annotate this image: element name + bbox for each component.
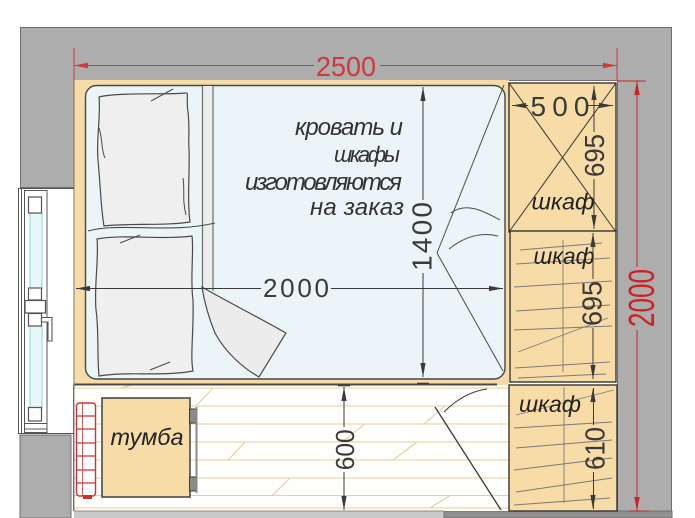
svg-text:кровать и: кровать и	[295, 114, 403, 141]
svg-text:шкаф: шкаф	[532, 189, 595, 215]
svg-text:шкаф: шкаф	[534, 243, 595, 269]
svg-text:600: 600	[330, 429, 360, 470]
svg-text:тумба: тумба	[111, 424, 184, 450]
svg-text:изготовляются: изготовляются	[245, 169, 402, 196]
svg-text:2500: 2500	[316, 51, 376, 82]
svg-text:695: 695	[577, 281, 608, 326]
svg-text:шкафы: шкафы	[334, 142, 400, 167]
svg-text:шкаф: шкаф	[519, 391, 581, 417]
svg-text:на заказ: на заказ	[310, 194, 404, 221]
svg-text:2000: 2000	[621, 269, 662, 327]
svg-text:695: 695	[579, 134, 610, 177]
svg-text:610: 610	[580, 427, 611, 470]
svg-text:500: 500	[531, 91, 590, 122]
